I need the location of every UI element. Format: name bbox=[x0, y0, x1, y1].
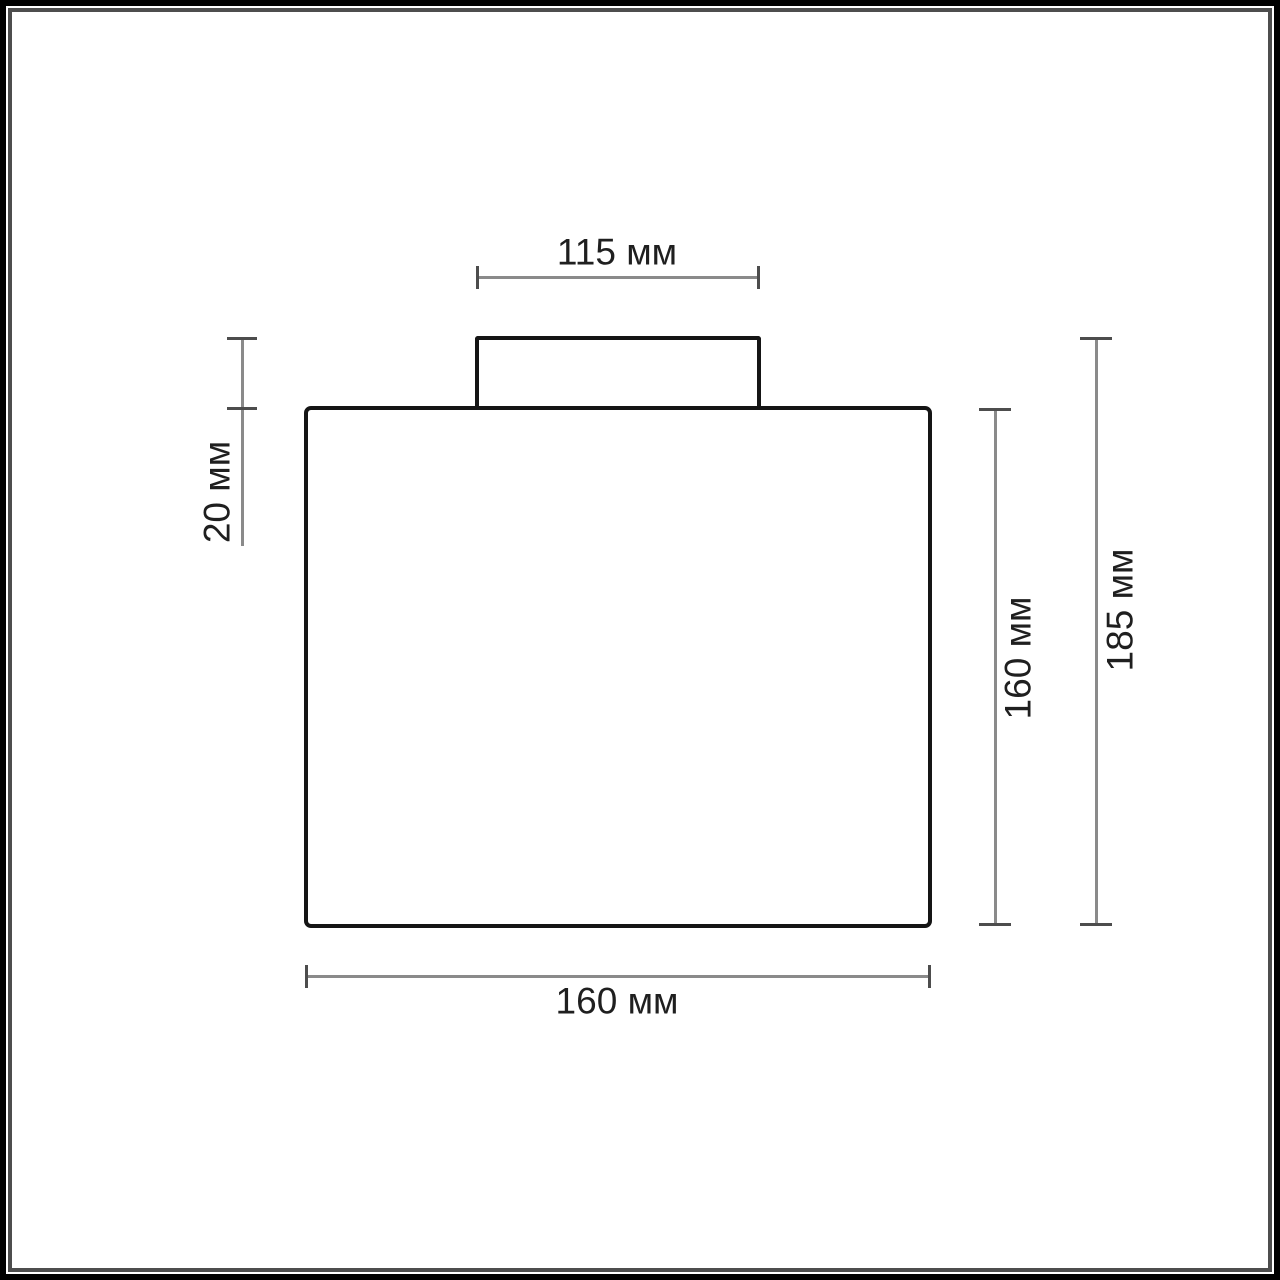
dimension-label-mount-width: 115 мм bbox=[557, 234, 677, 271]
dimension-tick bbox=[757, 266, 760, 289]
dimension-tick bbox=[979, 923, 1011, 926]
drawing-stage: 115 мм 20 мм 160 мм 185 мм 1 bbox=[0, 0, 1280, 1280]
dimension-label-mount-height: 20 мм bbox=[199, 441, 236, 543]
dimension-label-body-height: 160 мм bbox=[1000, 597, 1037, 720]
dimension-tick bbox=[1080, 923, 1112, 926]
dimension-tick bbox=[928, 965, 931, 988]
lamp-body-outline bbox=[304, 406, 932, 928]
technical-drawing-page: 115 мм 20 мм 160 мм 185 мм 1 bbox=[0, 0, 1280, 1280]
dimension-label-total-height: 185 мм bbox=[1102, 549, 1139, 672]
dimension-line bbox=[1095, 338, 1098, 926]
dimension-tick bbox=[227, 337, 257, 340]
mounting-base-outline bbox=[475, 336, 761, 410]
dimension-line bbox=[306, 975, 931, 978]
dimension-label-body-width: 160 мм bbox=[556, 983, 679, 1020]
dimension-tick bbox=[979, 408, 1011, 411]
dimension-tick bbox=[1080, 337, 1112, 340]
dimension-tick bbox=[227, 407, 257, 410]
dimension-tick bbox=[305, 965, 308, 988]
dimension-line bbox=[241, 338, 244, 546]
dimension-tick bbox=[476, 266, 479, 289]
dimension-line bbox=[477, 276, 759, 279]
